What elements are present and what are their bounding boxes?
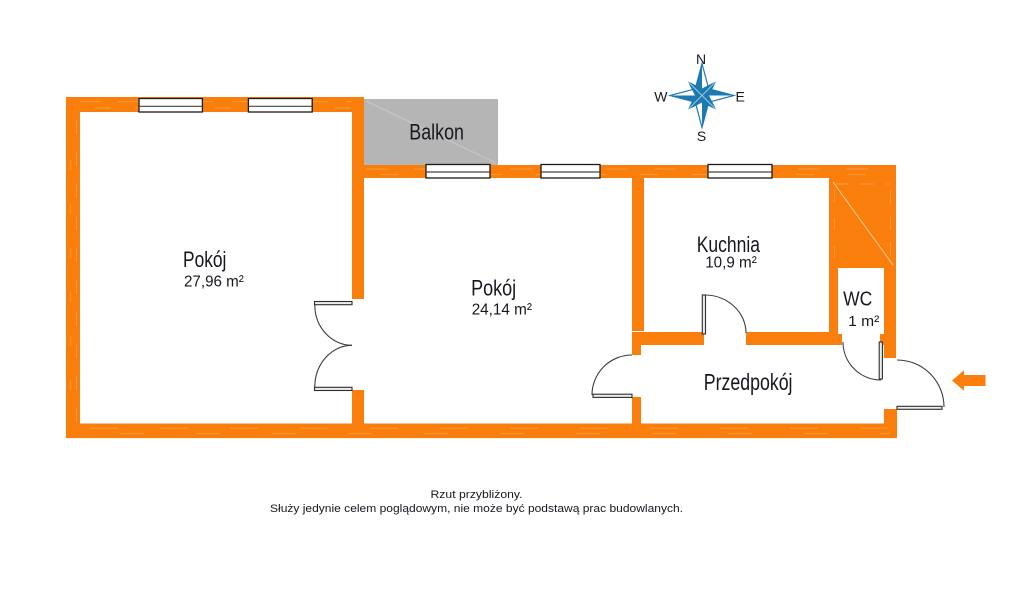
svg-text:W: W [654, 89, 668, 105]
svg-text:E: E [736, 89, 745, 105]
svg-text:Balkon: Balkon [409, 120, 464, 145]
svg-text:Służy jedynie celem poglądowym: Służy jedynie celem poglądowym, nie może… [270, 503, 683, 515]
svg-text:24,14 m²: 24,14 m² [472, 302, 533, 319]
svg-text:1 m²: 1 m² [848, 313, 879, 330]
svg-text:10,9 m²: 10,9 m² [705, 254, 757, 271]
svg-text:S: S [697, 128, 706, 144]
svg-text:Rzut przybliżony.: Rzut przybliżony. [431, 489, 523, 501]
svg-text:Pokój: Pokój [471, 276, 516, 301]
svg-text:WC: WC [843, 289, 872, 311]
svg-text:Pokój: Pokój [183, 247, 226, 272]
svg-text:Przedpokój: Przedpokój [704, 369, 793, 395]
svg-text:Kuchnia: Kuchnia [697, 232, 761, 257]
svg-text:N: N [696, 51, 706, 67]
svg-text:27,96 m²: 27,96 m² [184, 273, 244, 290]
